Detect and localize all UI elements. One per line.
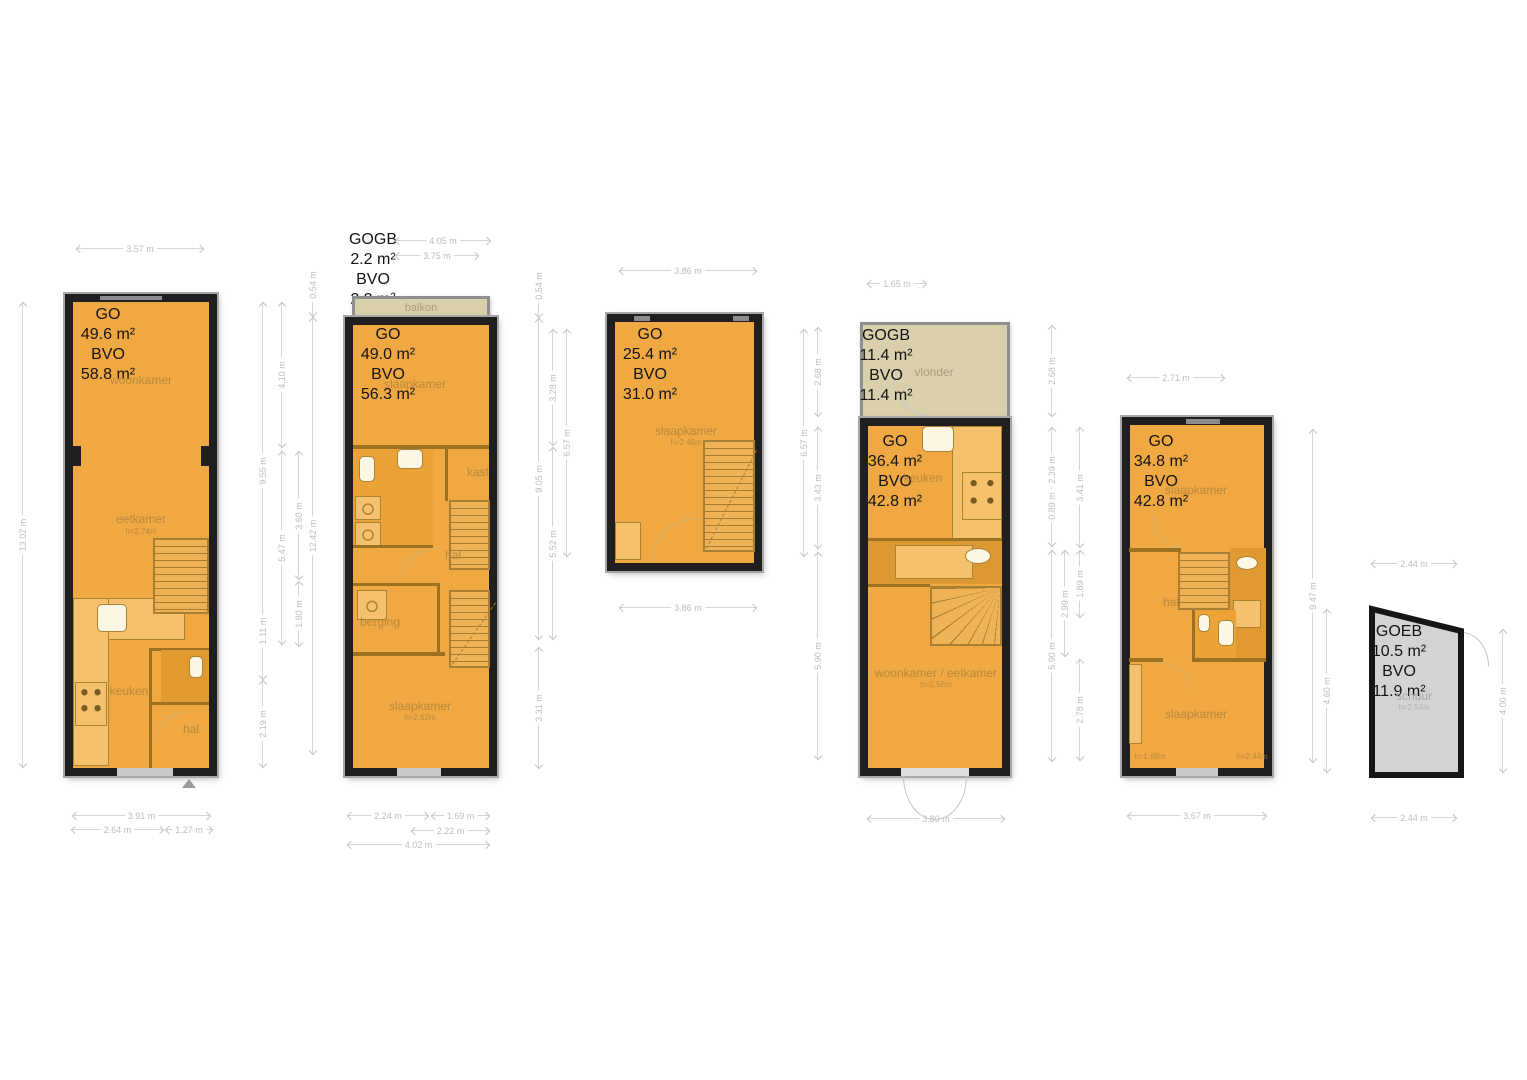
area-summary: GO 25.4 m² BVO 31.0 m² (604, 325, 696, 405)
interior-wall (1194, 658, 1266, 662)
gogb-label: GOGB (840, 326, 932, 346)
dim-label: 2.71 m (1159, 373, 1193, 383)
washing-machine (355, 522, 381, 546)
bvo-label: BVO (62, 345, 154, 365)
room-label-slaapkamer: slaapkamer (1146, 483, 1246, 497)
dim-label: 5.47 m (277, 531, 287, 565)
staircase (153, 538, 209, 614)
gogb-value: 11.4 m² (840, 346, 932, 366)
interior-wall (149, 650, 152, 768)
closet (1129, 664, 1142, 744)
dim-line: 13.02 m (22, 303, 23, 767)
sink (1198, 614, 1210, 632)
dim-line: 3.67 m (1128, 815, 1266, 816)
interior-wall (1192, 610, 1195, 662)
interior-wall (152, 702, 209, 705)
dim-label: 2.99 m (1060, 587, 1070, 621)
dim-line: 5.90 m (1051, 551, 1052, 761)
dim-label: 13.02 m (18, 516, 28, 555)
dim-line: 2.22 m (412, 830, 489, 831)
dim-line: 2.64 m (72, 829, 163, 830)
bvo-value: 11.4 m² (840, 386, 932, 406)
dim-label: 3.31 m (534, 691, 544, 725)
go-label: GO (849, 432, 941, 452)
dim-line: 9.55 m (262, 303, 263, 638)
bvo-label: BVO (1353, 662, 1445, 682)
dim-line: 3.41 m (1079, 428, 1080, 547)
go-value: 49.0 m² (342, 345, 434, 365)
go-value: 49.6 m² (62, 325, 154, 345)
area-summary: GO 49.0 m² BVO 56.3 m² (342, 325, 434, 405)
bvo-value: 42.8 m² (849, 492, 941, 512)
counter (895, 545, 973, 579)
go-label: GO (1115, 432, 1207, 452)
dim-line: 2.24 m (348, 815, 428, 816)
room-height-label: h=1.98m (1128, 752, 1172, 761)
dim-label: 2.39 m (1047, 453, 1057, 487)
dim-label: 2.19 m (258, 707, 268, 741)
dim-line: 9.05 m (538, 319, 539, 639)
dim-line: 1.65 m (868, 283, 926, 284)
toilet (359, 456, 375, 482)
room-label-keuken: keuken (873, 471, 973, 485)
dim-line: 5.90 m (817, 553, 818, 759)
bvo-label: BVO (327, 270, 419, 290)
sink (97, 604, 127, 632)
dim-label: 0.89 m (1047, 489, 1057, 523)
dim-label: 1.65 m (880, 279, 914, 289)
dim-line: 2.68 m (817, 328, 818, 416)
dim-label: 2.22 m (434, 826, 468, 836)
goeb-label: GOEB (1353, 622, 1445, 642)
sink (965, 548, 991, 564)
balcony: balkon (352, 296, 490, 319)
staircase (449, 590, 490, 668)
dim-label: 0.54 m (308, 268, 318, 302)
window (1176, 768, 1218, 776)
interior-wall (868, 538, 1002, 541)
room-height-label: h=2.44m (1230, 752, 1274, 761)
dim-line: 2.68 m (1051, 326, 1052, 416)
dim-label: 3.75 m (420, 251, 454, 261)
go-label: GO (342, 325, 434, 345)
dim-line: 5.47 m (281, 452, 282, 644)
dim-line: 0.54 m (312, 294, 313, 316)
room-label-hal: hal (1146, 595, 1196, 609)
go-label: GO (604, 325, 696, 345)
dim-label: 5.90 m (813, 639, 823, 673)
room-label-berging: berging (350, 615, 410, 629)
dim-line: 3.75 m (396, 255, 478, 256)
dim-label: 1.27 m (172, 825, 206, 835)
dim-label: 2.68 m (1047, 354, 1057, 388)
room-label-vlonder: vlonder (884, 365, 984, 379)
dim-line: 2.99 m (1064, 551, 1065, 656)
window (1186, 419, 1220, 424)
bvo-value: 31.0 m² (604, 385, 696, 405)
room-label-woonkamer-eetkamer: woonkamer / eetkamer (861, 666, 1011, 680)
dim-label: 9.55 m (258, 454, 268, 488)
room-height-label: h=2.74m (91, 527, 191, 536)
dim-label: 2.44 m (1397, 559, 1431, 569)
dim-label: 3.86 m (671, 603, 705, 613)
dim-label: 3.67 m (1180, 811, 1214, 821)
closet (615, 522, 641, 560)
dim-line: 4.02 m (348, 844, 489, 845)
dim-line: 3.91 m (73, 815, 210, 816)
dim-line: 3.86 m (620, 270, 756, 271)
dim-line: 3.57 m (77, 248, 203, 249)
dim-line: 3.86 m (620, 607, 756, 608)
room-height-label: h=2.54m (1379, 703, 1449, 712)
dim-label: 2.78 m (1075, 693, 1085, 727)
bvo-label: BVO (604, 365, 696, 385)
dim-label: 3.86 m (671, 266, 705, 276)
entrance-marker (182, 779, 196, 788)
dim-label: 4.60 m (1322, 674, 1332, 708)
toilet (189, 656, 203, 678)
go-value: 34.8 m² (1115, 452, 1207, 472)
dim-line: 1.11 m (262, 640, 263, 679)
wall-pier (73, 446, 81, 466)
dim-label: 4.02 m (402, 840, 436, 850)
room-label-hal: hal (433, 548, 473, 562)
dim-line: 1.27 m (166, 829, 212, 830)
wall-pier (201, 446, 209, 466)
dim-line: 4.60 m (1326, 610, 1327, 772)
dim-line: 4.05 m (396, 240, 490, 241)
dim-label: 6.57 m (799, 426, 809, 460)
dim-line: 1.89 m (1079, 551, 1080, 617)
dim-line: 3.28 m (552, 330, 553, 445)
dim-label: 3.28 m (548, 371, 558, 405)
dim-label: 4.10 m (277, 358, 287, 392)
dim-line: 2.44 m (1372, 817, 1456, 818)
interior-wall (1129, 548, 1181, 552)
interior-wall (353, 545, 433, 548)
dim-line: 12.42 m (312, 318, 313, 754)
dim-line: 1.69 m (432, 815, 489, 816)
dim-line: 4.00 m (1502, 630, 1503, 772)
toilet (1218, 620, 1234, 646)
room-label-hal: hal (166, 722, 216, 736)
dim-line: 2.78 m (1079, 660, 1080, 760)
dim-label: 5.90 m (1047, 639, 1057, 673)
interior-wall (868, 584, 930, 587)
interior-wall (353, 583, 439, 586)
dim-line: 0.54 m (538, 295, 539, 317)
window (100, 296, 162, 300)
room-height-label: h=2.46m (636, 438, 736, 447)
room-label-eetkamer: eetkamer (91, 512, 191, 526)
dim-line: 3.43 m (817, 428, 818, 548)
interior-wall (1129, 658, 1163, 662)
go-label: GO (62, 305, 154, 325)
interior-wall (445, 449, 448, 501)
french-door-arc (903, 776, 935, 820)
room-label-keuken: keuken (94, 684, 164, 698)
dim-label: 1.89 m (1075, 567, 1085, 601)
dim-label: 9.47 m (1308, 579, 1318, 613)
room-label-slaapkamer: slaapkamer (1146, 707, 1246, 721)
dim-label: 1.80 m (294, 597, 304, 631)
dim-line: 5.52 m (552, 448, 553, 639)
dim-label: 3.91 m (125, 811, 159, 821)
dim-label: 2.64 m (101, 825, 135, 835)
shower (1233, 600, 1261, 628)
go-value: 25.4 m² (604, 345, 696, 365)
dim-line: 0.89 m (1051, 515, 1052, 546)
dim-line: 2.71 m (1128, 377, 1224, 378)
floorplan-sheet: 3.57 m 13.02 m 9.55 m 1.11 m 2.19 m 4.10… (0, 0, 1527, 1080)
dim-line: 9.47 m (1312, 430, 1313, 762)
french-door-arc (935, 776, 967, 820)
room-label-slaapkamer: slaapkamer (370, 699, 470, 713)
dim-label: 5.52 m (548, 527, 558, 561)
room-label-woonkamer: woonkamer (91, 373, 191, 387)
interior-wall (353, 652, 445, 656)
gogb-value: 2.2 m² (327, 250, 419, 270)
dim-line: 2.44 m (1372, 563, 1456, 564)
dim-label: 3.43 m (813, 471, 823, 505)
dim-line: 6.57 m (566, 330, 567, 556)
room-label-slaapkamer: slaapkamer (636, 424, 736, 438)
dim-label: 2.68 m (813, 355, 823, 389)
dim-line: 6.57 m (803, 330, 804, 556)
room-height-label: h=2.62m (370, 713, 470, 722)
staircase-winder (930, 586, 1002, 646)
window (397, 768, 441, 776)
area-summary: GO 34.8 m² BVO 42.8 m² (1115, 432, 1207, 512)
dim-label: 4.05 m (426, 236, 460, 246)
window (117, 768, 173, 776)
washing-machine (355, 496, 381, 520)
interior-wall (437, 583, 440, 653)
room-label-slaapkamer: slaapkamer (365, 377, 465, 391)
room-label-kast: kast (453, 465, 503, 479)
dim-label: 3.60 m (294, 499, 304, 533)
window (634, 316, 650, 321)
dim-line: 4.10 m (281, 303, 282, 447)
dim-label: 3.57 m (123, 244, 157, 254)
go-value: 36.4 m² (849, 452, 941, 472)
window (733, 316, 749, 321)
sink (397, 449, 423, 469)
dim-label: 1.11 m (258, 615, 268, 648)
dim-line: 2.19 m (262, 681, 263, 767)
sink (1236, 556, 1258, 570)
dim-label: 2.24 m (371, 811, 405, 821)
staircase (703, 440, 755, 552)
door-opening (901, 768, 969, 776)
dim-label: 9.05 m (534, 462, 544, 496)
dim-label: 12.42 m (308, 517, 318, 556)
dim-label: 6.57 m (562, 426, 572, 460)
dim-label: 1.69 m (444, 811, 478, 821)
balcony-label: balkon (355, 302, 487, 314)
room-height-label: h=2.56m (861, 680, 1011, 689)
room-label-schuur: schuur (1379, 689, 1449, 703)
dim-label: 4.00 m (1498, 684, 1508, 718)
dim-line: 3.31 m (538, 648, 539, 768)
dim-line: 3.60 m (298, 452, 299, 579)
dim-label: 0.54 m (534, 269, 544, 303)
door-arc (1461, 632, 1489, 666)
dim-label: 2.44 m (1397, 813, 1431, 823)
dim-label: 3.41 m (1075, 471, 1085, 505)
dim-line: 1.80 m (298, 582, 299, 646)
goeb-value: 10.5 m² (1353, 642, 1445, 662)
